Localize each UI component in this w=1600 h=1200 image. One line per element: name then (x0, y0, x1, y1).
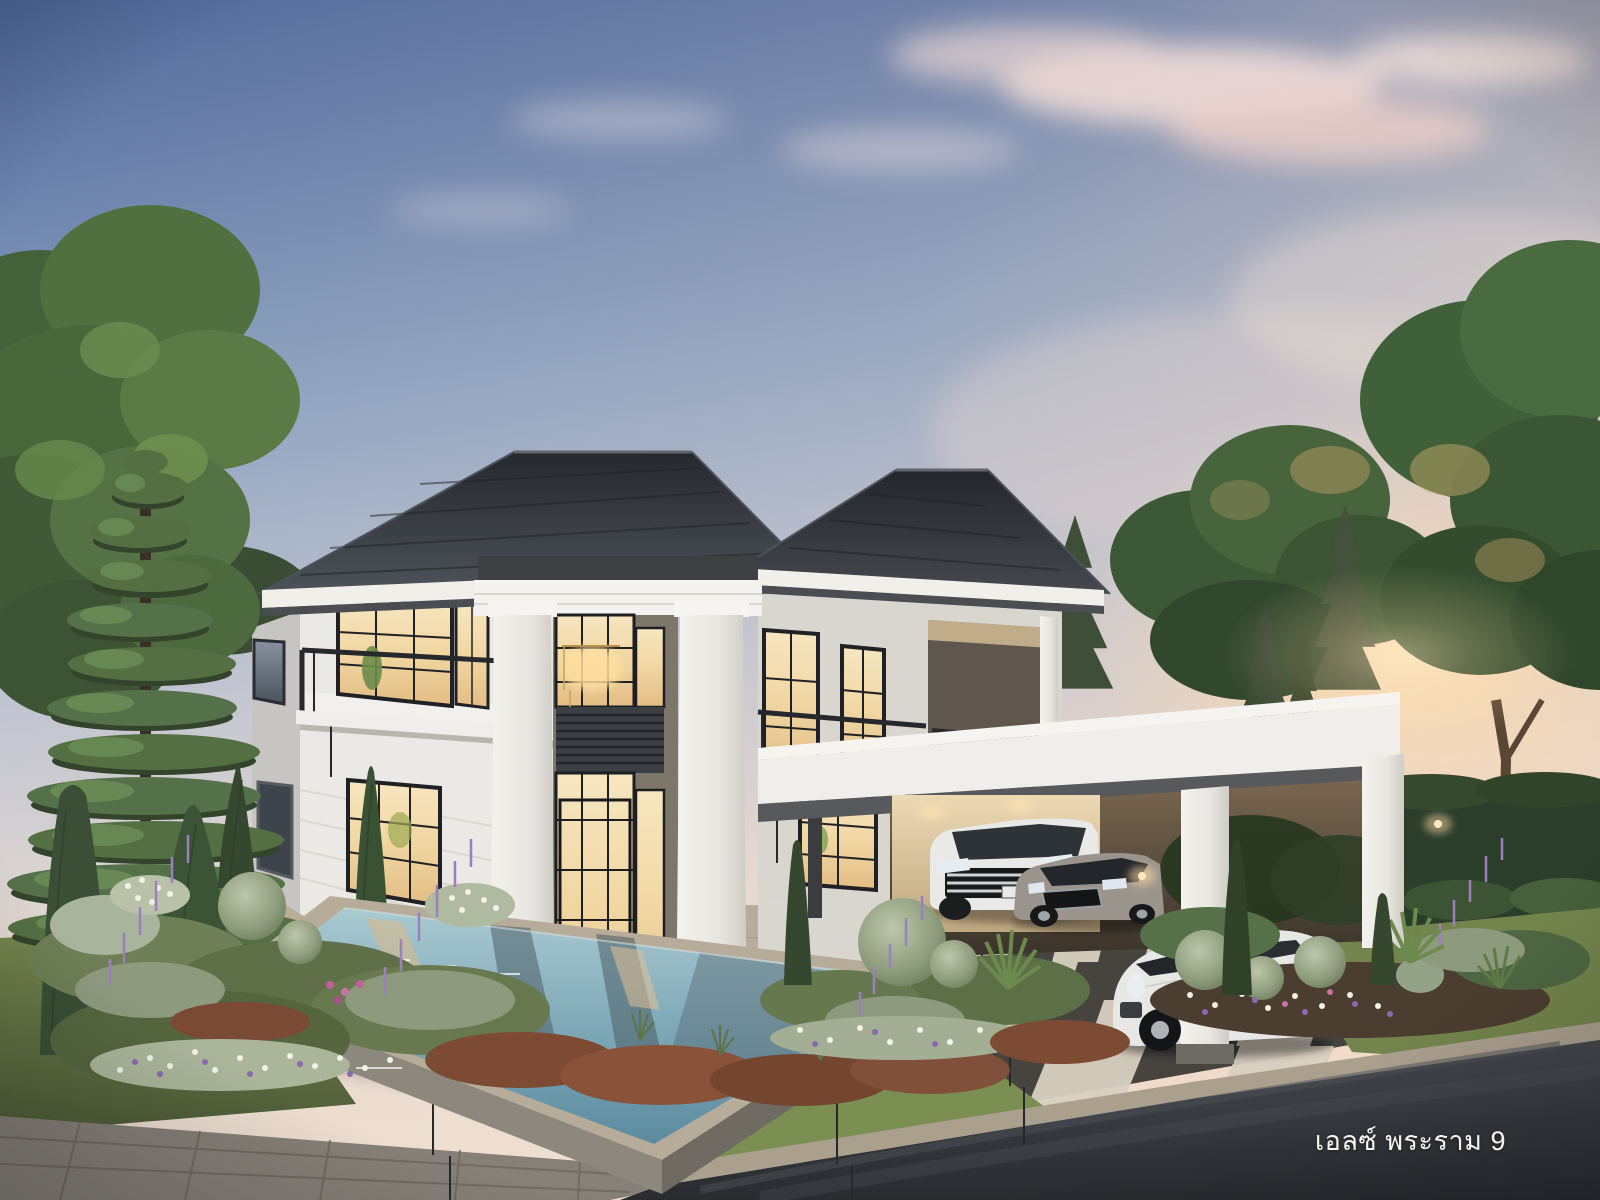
rendering-canvas: เอลซ์ พระราม 9 (0, 0, 1600, 1200)
vignette-overlay (0, 0, 1600, 1200)
watermark-text: เอลซ์ พระราม 9 (1315, 1119, 1506, 1162)
